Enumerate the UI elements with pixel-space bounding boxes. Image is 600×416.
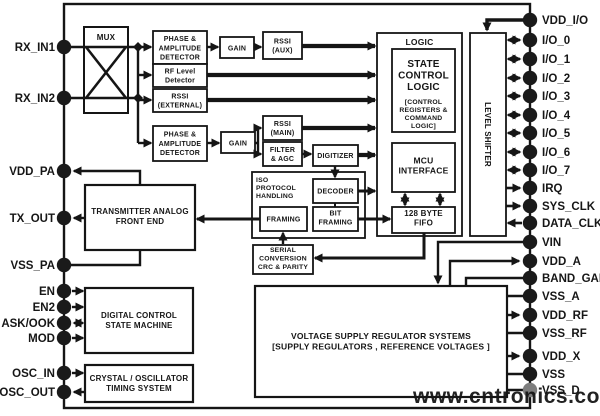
wire-vreg-bandgap bbox=[466, 278, 524, 286]
pin-dot-right-8 bbox=[523, 163, 537, 177]
label-bit_framing-line1: BIT bbox=[330, 211, 342, 218]
pin-label-left-6: EN2 bbox=[33, 302, 55, 314]
pin-label-left-5: EN bbox=[39, 286, 55, 298]
pin-dot-right-7 bbox=[523, 145, 537, 159]
wire-tafe-vsspa bbox=[66, 250, 140, 265]
pin-dot-right-2 bbox=[523, 52, 537, 66]
label-logic_title-line1: LOGIC bbox=[406, 37, 434, 47]
screenshot-root: MUXPHASE &AMPLITUDEDETECTORGAINRSSI(AUX)… bbox=[0, 0, 600, 416]
pin-label-right-0: VDD_I/O bbox=[542, 15, 588, 27]
pin-dot-left-10 bbox=[57, 385, 71, 399]
label-rssi_aux-line2: (AUX) bbox=[272, 48, 292, 55]
pin-label-right-19: VSS bbox=[542, 369, 565, 381]
label-gain_top-line1: GAIN bbox=[228, 46, 246, 53]
label-mcu_interface-line2: INTERFACE bbox=[399, 166, 449, 176]
pin-label-right-15: VSS_A bbox=[542, 291, 580, 303]
label-phase_amp_detector_bottom-line1: PHASE & bbox=[164, 132, 197, 139]
label-fifo-line1: 128 BYTE bbox=[404, 209, 443, 218]
pin-label-right-12: VIN bbox=[542, 237, 561, 249]
pin-dot-left-9 bbox=[57, 366, 71, 380]
pin-label-right-9: IRQ bbox=[542, 183, 563, 195]
label-xtal-line1: CRYSTAL / OSCILLATOR bbox=[90, 374, 189, 383]
label-phase_amp_detector_bottom-line2: AMPLITUDE bbox=[159, 141, 202, 148]
pin-label-left-1: RX_IN2 bbox=[15, 93, 55, 105]
pin-label-right-18: VDD_X bbox=[542, 351, 581, 363]
label-phase_amp_detector_top-line2: AMPLITUDE bbox=[159, 45, 202, 52]
pin-dot-right-1 bbox=[523, 33, 537, 47]
label-rf_level_detector-line1: RF Level bbox=[165, 69, 196, 76]
junction-dot-2 bbox=[133, 93, 143, 103]
pin-label-right-5: I/O_4 bbox=[542, 110, 571, 122]
pin-dot-left-8 bbox=[57, 331, 71, 345]
pin-label-left-4: VSS_PA bbox=[10, 260, 55, 272]
wire-vreg-vdda bbox=[450, 261, 519, 286]
pin-label-right-4: I/O_3 bbox=[542, 91, 570, 103]
pin-dot-right-12 bbox=[523, 235, 537, 249]
pin-label-right-6: I/O_5 bbox=[542, 128, 571, 140]
label-rssi_aux-line1: RSSI bbox=[274, 39, 291, 46]
pin-dot-right-5 bbox=[523, 108, 537, 122]
label-filter_agc-line1: FILTER bbox=[270, 147, 295, 154]
pin-label-left-10: OSC_OUT bbox=[0, 387, 55, 399]
ic-block-diagram: MUXPHASE &AMPLITUDEDETECTORGAINRSSI(AUX)… bbox=[0, 0, 600, 416]
pin-dot-right-10 bbox=[523, 199, 537, 213]
label-rssi_main-line2: (MAIN) bbox=[271, 130, 295, 137]
label-vreg-line2: [SUPPLY REGULATORS , REFERENCE VOLTAGES … bbox=[272, 342, 490, 352]
label-level_shifter-line1: LEVEL SHIFTER bbox=[483, 102, 492, 167]
pin-dot-right-11 bbox=[523, 216, 537, 230]
pin-dot-left-4 bbox=[57, 258, 71, 272]
pin-dot-right-9 bbox=[523, 181, 537, 195]
pin-dot-right-19 bbox=[523, 367, 537, 381]
label-gain_bottom-line1: GAIN bbox=[229, 141, 247, 148]
label-scl_sub-line3: COMMAND bbox=[405, 115, 443, 122]
label-scl_sub-line1: [CONTROL bbox=[405, 99, 442, 106]
label-serial_conversion-line2: CONVERSION bbox=[259, 256, 307, 263]
pin-label-right-14: BAND_GAP bbox=[542, 273, 600, 285]
label-xtal-line2: TIMING SYSTEM bbox=[106, 384, 172, 393]
label-rssi_main-line1: RSSI bbox=[274, 121, 291, 128]
pin-dot-right-18 bbox=[523, 349, 537, 363]
pin-dot-right-13 bbox=[523, 254, 537, 268]
label-iso_label-line3: HANDLING bbox=[256, 193, 293, 200]
pin-dot-right-0 bbox=[523, 13, 537, 27]
pin-dot-right-3 bbox=[523, 71, 537, 85]
label-vreg-line1: VOLTAGE SUPPLY REGULATOR SYSTEMS bbox=[291, 331, 471, 341]
pin-dot-right-15 bbox=[523, 289, 537, 303]
pin-label-left-3: TX_OUT bbox=[10, 213, 55, 225]
pin-label-left-9: OSC_IN bbox=[12, 368, 55, 380]
watermark-text: www.cntronics.com bbox=[412, 385, 600, 408]
pin-dot-left-5 bbox=[57, 284, 71, 298]
pin-label-left-8: MOD bbox=[28, 333, 55, 345]
pin-label-left-2: VDD_PA bbox=[9, 166, 55, 178]
pin-dot-left-0 bbox=[57, 40, 71, 54]
pin-label-right-8: I/O_7 bbox=[542, 165, 570, 177]
block-rssi-aux bbox=[263, 32, 302, 59]
pin-label-right-2: I/O_1 bbox=[542, 54, 571, 66]
label-tafe-line2: FRONT END bbox=[116, 217, 164, 226]
label-iso_label-line2: PROTOCOL bbox=[256, 185, 296, 192]
label-state_control_logic-line3: LOGIC bbox=[407, 82, 440, 93]
pin-dot-right-4 bbox=[523, 89, 537, 103]
pin-dot-right-17 bbox=[523, 326, 537, 340]
pin-dot-right-6 bbox=[523, 126, 537, 140]
label-dcsm-line1: DIGITAL CONTROL bbox=[101, 311, 177, 320]
label-dcsm-line2: STATE MACHINE bbox=[105, 321, 173, 330]
pin-dot-left-6 bbox=[57, 300, 71, 314]
pin-label-right-7: I/O_6 bbox=[542, 147, 570, 159]
pin-label-right-10: SYS_CLK bbox=[542, 201, 596, 213]
label-serial_conversion-line3: CRC & PARITY bbox=[258, 264, 308, 271]
pin-label-left-0: RX_IN1 bbox=[15, 42, 56, 54]
pin-dot-right-16 bbox=[523, 308, 537, 322]
wire-vddio-levelshifter bbox=[487, 20, 528, 30]
label-decoder-line1: DECODER bbox=[317, 189, 353, 196]
label-scl_sub-line4: LOGIC] bbox=[411, 123, 436, 130]
label-scl_sub-line2: REGISTERS & bbox=[399, 107, 447, 114]
pin-label-right-17: VSS_RF bbox=[542, 328, 587, 340]
pin-label-right-11: DATA_CLK bbox=[542, 218, 600, 230]
junction-dot-1 bbox=[133, 42, 143, 52]
pin-dot-left-7 bbox=[57, 316, 71, 330]
pin-dot-left-2 bbox=[57, 164, 71, 178]
label-state_control_logic-line1: STATE bbox=[407, 59, 439, 70]
label-mux-line1: MUX bbox=[97, 33, 116, 42]
pin-label-right-1: I/O_0 bbox=[542, 35, 570, 47]
label-fifo-line2: FIFO bbox=[414, 219, 433, 228]
pin-label-left-7: ASK/OOK bbox=[1, 318, 55, 330]
label-mcu_interface-line1: MCU bbox=[414, 156, 434, 166]
label-tafe-line1: TRANSMITTER ANALOG bbox=[91, 207, 189, 216]
label-phase_amp_detector_bottom-line3: DETECTOR bbox=[160, 150, 200, 157]
label-iso_label-line1: ISO bbox=[256, 177, 268, 184]
label-rssi_external-line1: RSSI bbox=[171, 94, 188, 101]
label-filter_agc-line2: & AGC bbox=[271, 156, 294, 163]
pin-label-right-16: VDD_RF bbox=[542, 310, 588, 322]
label-rssi_external-line2: (EXTERNAL) bbox=[158, 103, 202, 110]
label-phase_amp_detector_top-line1: PHASE & bbox=[164, 36, 197, 43]
label-state_control_logic-line2: CONTROL bbox=[398, 71, 449, 82]
pin-dot-left-3 bbox=[57, 211, 71, 225]
label-rf_level_detector-line2: Detector bbox=[165, 78, 195, 85]
label-framing-line1: FRAMING bbox=[266, 217, 300, 224]
label-digitizer-line1: DIGITIZER bbox=[317, 153, 353, 160]
pin-label-right-13: VDD_A bbox=[542, 256, 581, 268]
label-serial_conversion-line1: SERIAL bbox=[270, 247, 296, 254]
wire-tafe-vddpa bbox=[74, 171, 140, 185]
pin-dot-left-1 bbox=[57, 91, 71, 105]
label-bit_framing-line2: FRAMING bbox=[318, 220, 352, 227]
pin-label-right-3: I/O_2 bbox=[542, 73, 570, 85]
pin-dot-right-14 bbox=[523, 271, 537, 285]
label-phase_amp_detector_top-line3: DETECTOR bbox=[160, 55, 200, 62]
